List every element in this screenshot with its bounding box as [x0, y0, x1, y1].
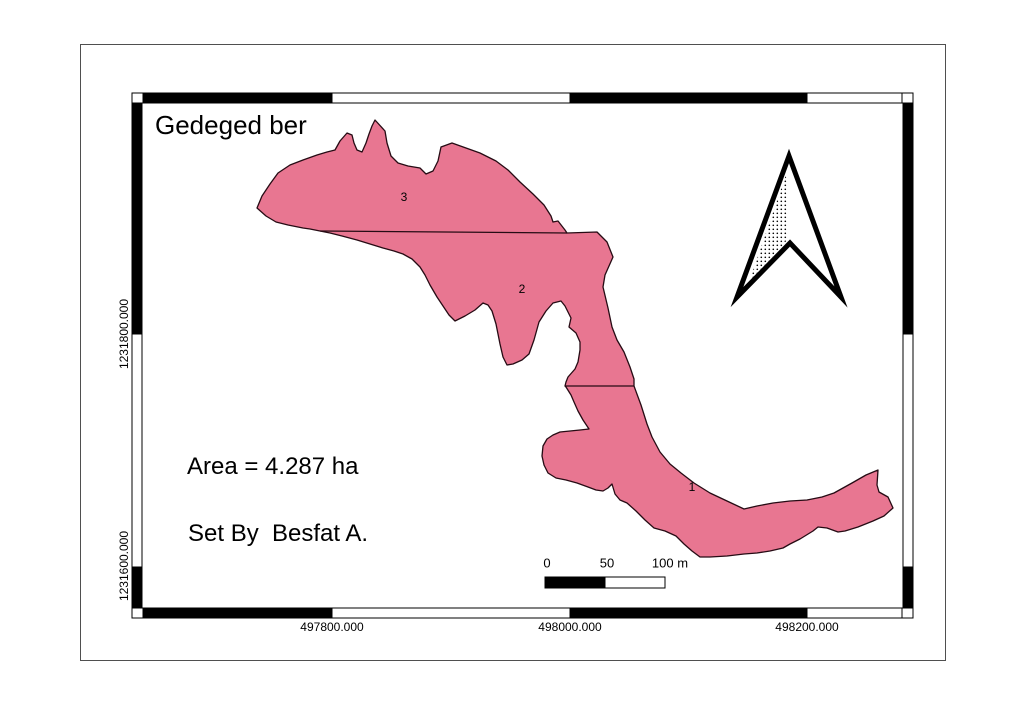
- grid-y-label: 1231800.000: [117, 299, 131, 369]
- frame-segment: [332, 608, 570, 618]
- grid-y-label: 1231600.000: [117, 531, 131, 601]
- frame-corner: [132, 608, 143, 618]
- map-page: Gedeged ber Area = 4.287 ha Set By Besfa…: [0, 0, 1024, 724]
- grid-x-label: 497800.000: [300, 620, 363, 634]
- parcel-label-3: 3: [401, 190, 408, 204]
- frame-segment: [132, 334, 142, 567]
- north-arrow-icon: [737, 156, 841, 297]
- map-layout-svg: [0, 0, 1024, 724]
- frame-segment: [807, 608, 902, 618]
- grid-x-label: 498200.000: [775, 620, 838, 634]
- scalebar: [545, 577, 665, 588]
- scalebar-tick-label: 50: [600, 556, 614, 571]
- frame-corner: [132, 93, 143, 103]
- parcel-label-2: 2: [519, 282, 526, 296]
- scalebar-tick-label: 100 m: [652, 556, 688, 571]
- frame-corner: [902, 93, 913, 103]
- scalebar-segment-filled: [545, 577, 605, 588]
- credit-label: Set By Besfat A.: [188, 520, 368, 548]
- frame-segment: [807, 93, 902, 103]
- area-label: Area = 4.287 ha: [187, 453, 358, 481]
- grid-x-label: 498000.000: [538, 620, 601, 634]
- parcel-label-1: 1: [689, 480, 696, 494]
- frame-corner: [902, 608, 913, 618]
- frame-segment: [332, 93, 570, 103]
- scalebar-tick-label: 0: [543, 556, 550, 571]
- frame-segment: [570, 608, 807, 618]
- frame-segment: [903, 567, 913, 608]
- frame-segment: [132, 567, 142, 608]
- frame-segment: [903, 103, 913, 334]
- frame-segment: [143, 608, 332, 618]
- frame-segment: [903, 334, 913, 567]
- frame-segment: [570, 93, 807, 103]
- frame-segment: [132, 103, 142, 334]
- page-title: Gedeged ber: [155, 110, 307, 141]
- frame-segment: [143, 93, 332, 103]
- scalebar-segment-empty: [605, 577, 665, 588]
